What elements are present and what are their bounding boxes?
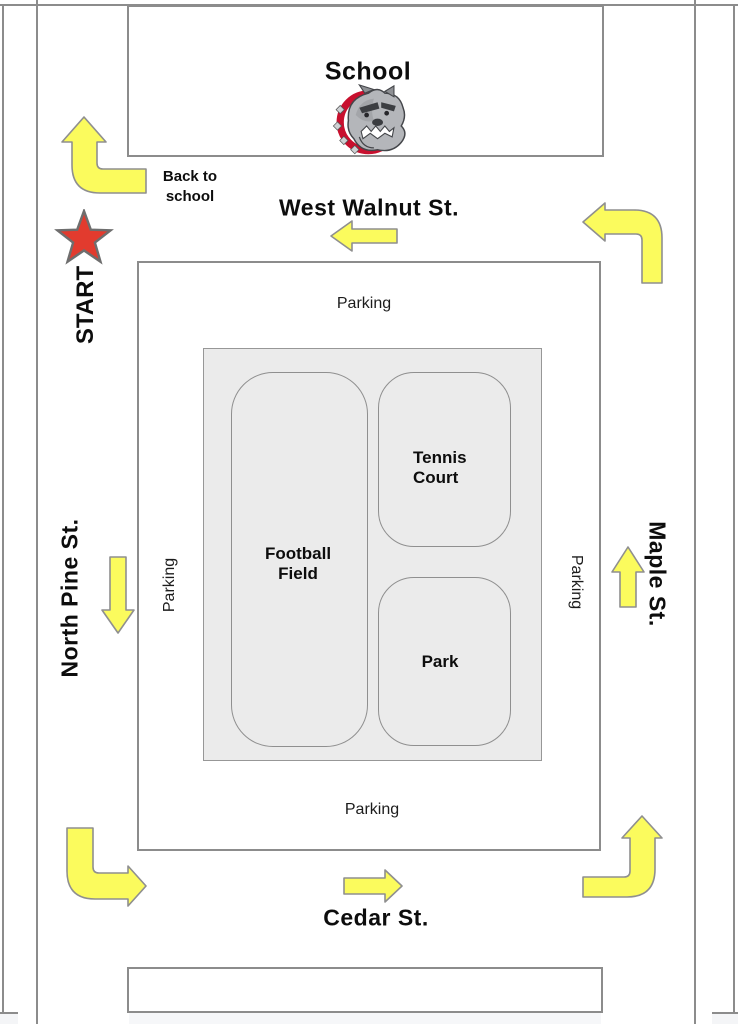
- street-label-maple: Maple St.: [644, 521, 671, 626]
- parking-label-top: Parking: [337, 295, 391, 313]
- parking-label-left: Parking: [161, 558, 179, 612]
- street-label-west-walnut: West Walnut St.: [279, 195, 459, 222]
- bottom-left-corner-fill: [0, 1014, 18, 1024]
- street-line-left-inner: [36, 0, 38, 1024]
- park-label: Park: [422, 652, 459, 672]
- bottom-right-corner-fill: [712, 1014, 738, 1024]
- route-arrow-turn-right-to-up: [581, 814, 665, 900]
- back-to-school-label: Back to school: [140, 167, 240, 206]
- parking-label-right: Parking: [567, 555, 585, 609]
- football-label-line1: Football: [248, 544, 348, 564]
- bulldog-logo-icon: [332, 84, 414, 157]
- tennis-court-label: Tennis Court: [413, 448, 467, 489]
- street-line-right-inner: [694, 0, 696, 1024]
- street-line-left-outer: [2, 4, 4, 1013]
- street-label-cedar: Cedar St.: [323, 905, 428, 932]
- bottom-block: [127, 967, 603, 1013]
- tennis-label-line1: Tennis: [413, 448, 467, 468]
- parking-label-bottom: Parking: [345, 801, 399, 819]
- route-arrow-north-pine-down: [101, 556, 135, 634]
- route-arrow-maple-up: [611, 546, 645, 608]
- start-label: START: [72, 266, 100, 344]
- route-map-canvas: School Back to school START West Walnut: [0, 0, 738, 1024]
- tennis-label-line2: Court: [413, 468, 467, 488]
- route-arrow-cedar-right: [343, 869, 403, 903]
- back-to-school-turn-arrow: [60, 115, 148, 195]
- school-label: School: [325, 58, 411, 87]
- street-line-right-outer: [733, 4, 735, 1013]
- route-arrow-turn-down-to-right: [64, 824, 150, 910]
- back-to-school-line1: Back to: [140, 167, 240, 187]
- start-star-icon: [54, 209, 114, 269]
- street-label-north-pine: North Pine St.: [57, 518, 84, 677]
- back-to-school-line2: school: [140, 187, 240, 207]
- bottom-block-shade: [129, 1013, 601, 1024]
- football-label-line2: Field: [248, 564, 348, 584]
- football-field-label: Football Field: [248, 544, 348, 585]
- route-arrow-west-walnut-left: [330, 220, 398, 252]
